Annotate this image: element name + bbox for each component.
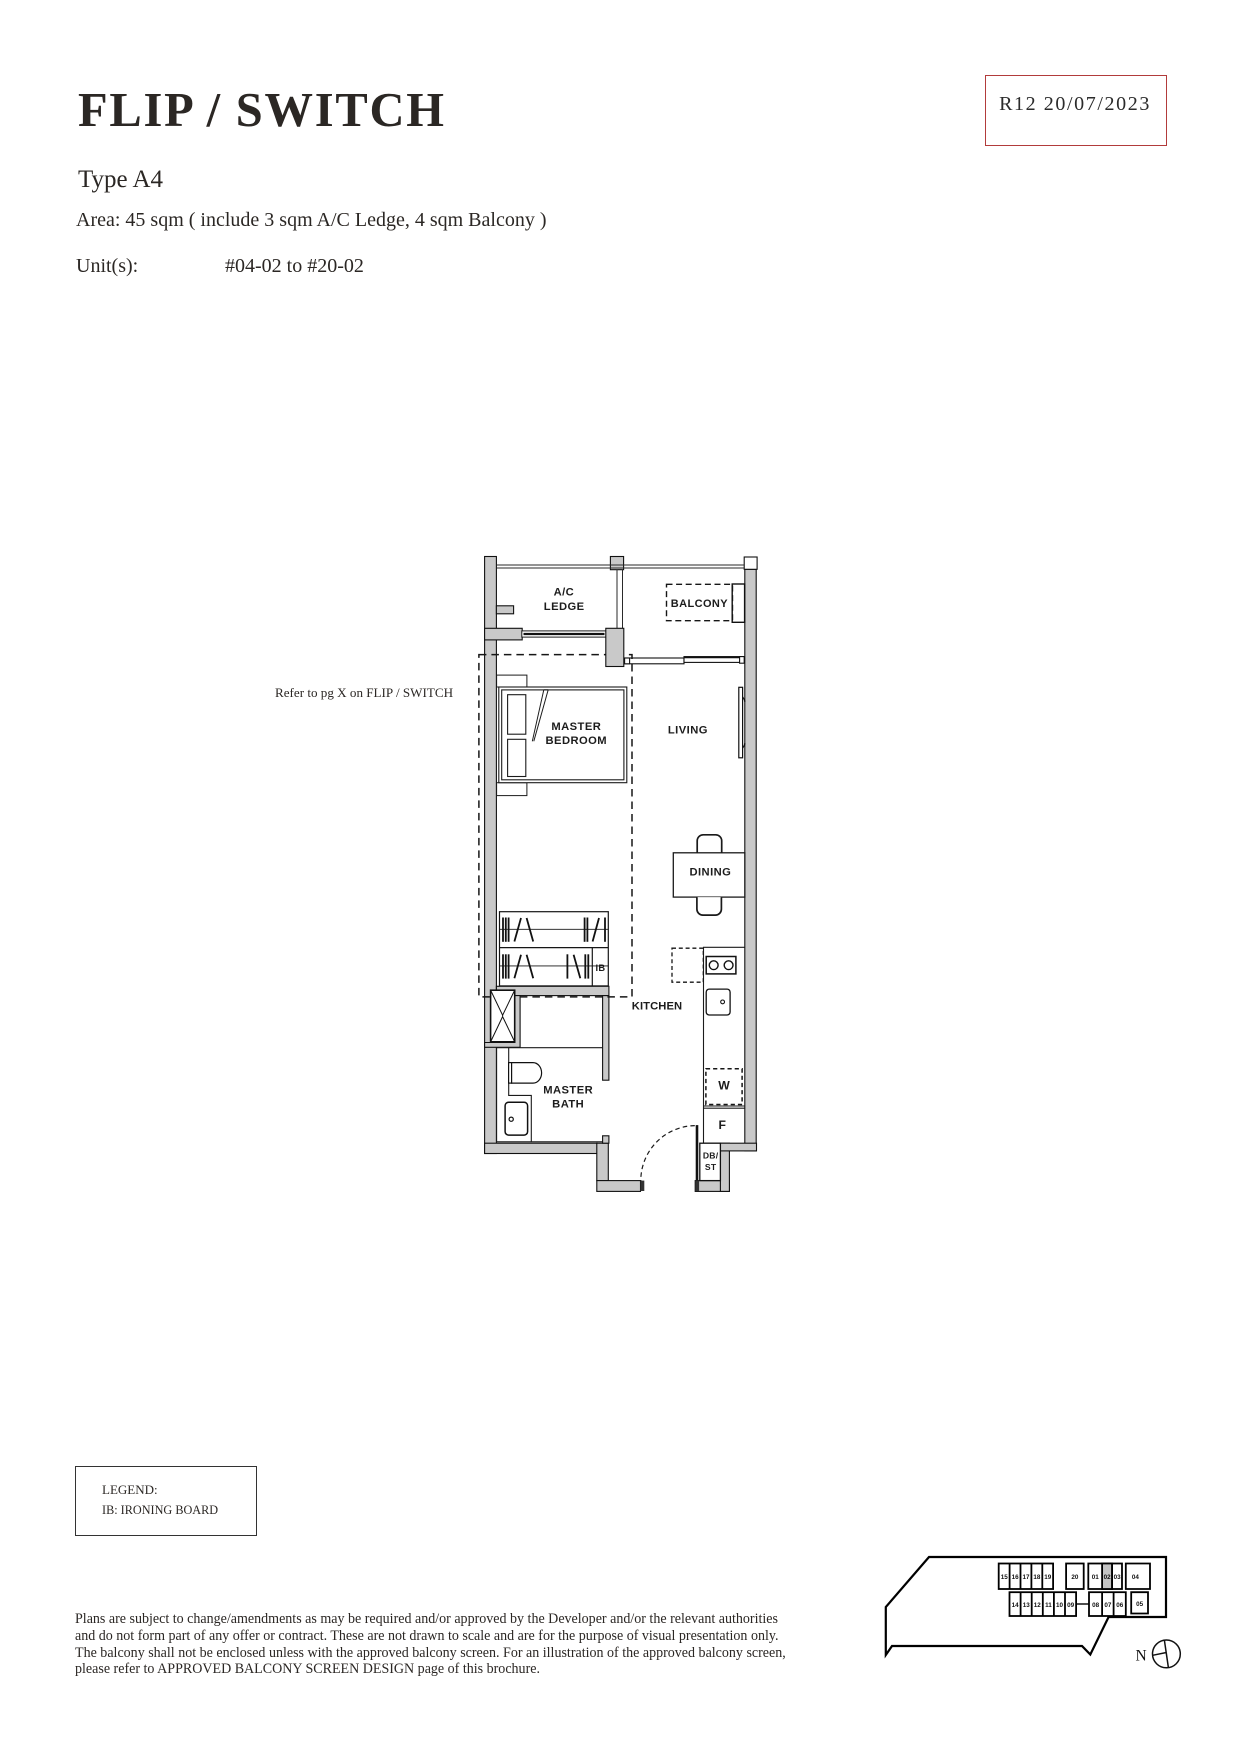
svg-text:17: 17: [1022, 1574, 1030, 1581]
svg-text:BATH: BATH: [552, 1098, 584, 1110]
svg-text:18: 18: [1033, 1574, 1041, 1581]
svg-text:A/C: A/C: [554, 586, 575, 598]
svg-text:12: 12: [1034, 1602, 1042, 1609]
svg-text:LIVING: LIVING: [668, 725, 708, 737]
svg-text:LEDGE: LEDGE: [544, 601, 585, 613]
svg-text:10: 10: [1056, 1602, 1064, 1609]
svg-text:MASTER: MASTER: [551, 721, 601, 733]
svg-text:BEDROOM: BEDROOM: [546, 735, 608, 747]
svg-text:14: 14: [1012, 1602, 1020, 1609]
svg-text:16: 16: [1012, 1574, 1020, 1581]
svg-text:08: 08: [1092, 1602, 1100, 1609]
svg-text:05: 05: [1136, 1601, 1144, 1608]
svg-text:15: 15: [1001, 1574, 1009, 1581]
svg-text:BALCONY: BALCONY: [671, 598, 728, 610]
svg-text:20: 20: [1071, 1574, 1079, 1581]
svg-text:09: 09: [1067, 1602, 1075, 1609]
svg-text:DB/: DB/: [703, 1151, 719, 1161]
svg-text:N: N: [1136, 1648, 1147, 1665]
svg-text:W: W: [718, 1078, 730, 1092]
svg-text:F: F: [719, 1118, 727, 1132]
svg-text:07: 07: [1104, 1602, 1112, 1609]
svg-text:11: 11: [1045, 1602, 1052, 1609]
svg-text:IB: IB: [596, 963, 606, 973]
svg-text:DINING: DINING: [689, 867, 731, 879]
svg-text:06: 06: [1116, 1602, 1124, 1609]
svg-text:ST: ST: [705, 1162, 717, 1172]
svg-text:03: 03: [1114, 1574, 1122, 1581]
svg-text:13: 13: [1023, 1602, 1031, 1609]
svg-text:02: 02: [1104, 1574, 1112, 1581]
svg-text:MASTER: MASTER: [543, 1085, 593, 1097]
svg-text:01: 01: [1092, 1574, 1100, 1581]
svg-text:19: 19: [1044, 1574, 1052, 1581]
svg-text:04: 04: [1132, 1574, 1140, 1581]
svg-text:KITCHEN: KITCHEN: [632, 1001, 682, 1013]
